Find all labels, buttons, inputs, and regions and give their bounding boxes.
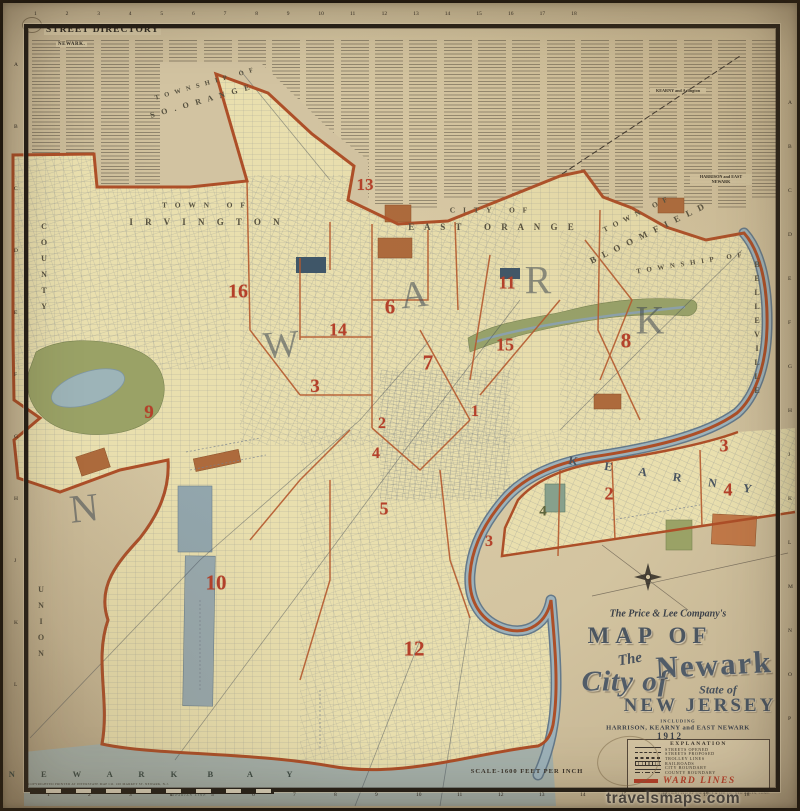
ward-number-12: 12	[404, 637, 425, 662]
ruler-top-5: 5	[160, 11, 163, 17]
ruler-right-G: G	[788, 364, 792, 370]
ward-number-16: 16	[228, 281, 248, 304]
ruler-top-6: 6	[192, 11, 195, 17]
legend-box: EXPLANATION STREETS OPENEDSTREETS PROPOS…	[627, 739, 770, 791]
ruler-left-D: D	[14, 248, 18, 254]
big-letter-R: R	[525, 257, 552, 304]
county-boundary	[562, 56, 740, 174]
ward-line-symbol	[634, 779, 658, 782]
map-label: UNION	[37, 585, 46, 665]
ward-number-3: 3	[485, 533, 493, 551]
survey-lines	[592, 545, 788, 610]
ruler-bottom-14: 14	[580, 792, 586, 798]
ward-number-2: 2	[378, 415, 386, 433]
ward-number-3: 3	[720, 436, 729, 457]
ward-number-5: 5	[380, 499, 389, 520]
ward-number-3: 3	[310, 376, 320, 398]
ruler-right-K: K	[788, 496, 792, 502]
ruler-top-11: 11	[350, 11, 355, 17]
ruler-top-13: 13	[413, 11, 419, 17]
ruler-right-E: E	[788, 276, 791, 282]
ward-number-15: 15	[496, 335, 514, 356]
ruler-left-K: K	[14, 620, 18, 626]
map-label: B A Y	[208, 769, 309, 779]
legend-item-label: COUNTY BOUNDARY	[665, 770, 716, 775]
ward-number-2: 2	[605, 484, 614, 505]
ward-number-9: 9	[144, 402, 154, 424]
ruler-left-A: A	[14, 62, 18, 68]
ruler-top-4: 4	[129, 11, 132, 17]
title-including: INCLUDING	[660, 719, 695, 724]
ruler-top-12: 12	[382, 11, 388, 17]
ruler-bottom-7: 7	[293, 792, 296, 798]
ruler-top-15: 15	[476, 11, 482, 17]
ruler-right-M: M	[788, 584, 793, 590]
ruler-bottom-11: 11	[457, 792, 462, 798]
ruler-left-B: B	[14, 124, 18, 130]
solid-symbol	[635, 747, 661, 751]
ruler-top-10: 10	[318, 11, 324, 17]
ruler-left-J: J	[14, 558, 16, 564]
ruler-right-O: O	[788, 672, 792, 678]
big-letter-K: K	[636, 297, 665, 344]
ruler-right-B: B	[788, 144, 792, 150]
map-label: I R V I N G T O N	[129, 217, 284, 227]
map-label: N E W A R K	[9, 769, 190, 779]
ruler-right-P: P	[788, 716, 791, 722]
scale-bar	[30, 788, 274, 794]
map-photo: STREET DIRECTORY NEWARK. KEARNY and Arli…	[0, 0, 800, 811]
ruler-right-F: F	[788, 320, 791, 326]
ruler-bottom-12: 12	[498, 792, 504, 798]
ward-number-4: 4	[539, 504, 547, 521]
title-newark: Newark	[655, 644, 774, 686]
title-map-of: MAP OF	[588, 623, 713, 649]
ruler-bottom-10: 10	[416, 792, 422, 798]
map-label: E A S T O R A N G E	[408, 222, 577, 232]
ruler-top-1: 1	[34, 11, 37, 17]
ruler-top-16: 16	[508, 11, 514, 17]
watermark: travelsmaps.com	[606, 790, 740, 808]
ruler-right-N: N	[788, 628, 792, 634]
publisher-imprint: COPYRIGHTED PRINTED AT INTERSTATE MAP CO…	[28, 782, 169, 786]
ward-number-14: 14	[329, 320, 347, 341]
ruler-right-A: A	[788, 100, 792, 106]
ward-number-4: 4	[724, 480, 733, 501]
ruler-left-L: L	[14, 682, 17, 688]
ruler-right-L: L	[788, 540, 791, 546]
title-new-jersey: NEW JERSEY	[624, 695, 777, 717]
title-company: The Price & Lee Company's	[610, 609, 727, 620]
ward-number-10: 10	[206, 571, 227, 596]
ruler-left-C: C	[14, 186, 18, 192]
big-letter-W: W	[262, 322, 301, 368]
ruler-top-9: 9	[287, 11, 290, 17]
ruler-bottom-13: 13	[539, 792, 545, 798]
legend-item: COUNTY BOUNDARY	[628, 770, 769, 775]
legend-ward-lines: WARD LINES	[628, 776, 769, 787]
cityline-symbol	[635, 765, 661, 770]
ward-number-8: 8	[621, 329, 632, 354]
ruler-bottom-9: 9	[375, 792, 378, 798]
ruler-bottom-8: 8	[334, 792, 337, 798]
ruler-left-H: H	[14, 496, 18, 502]
ward-number-1: 1	[471, 403, 479, 421]
big-letter-A: A	[398, 272, 430, 319]
countyline-symbol	[635, 772, 661, 773]
ruler-left-F: F	[14, 372, 17, 378]
ruler-top-7: 7	[224, 11, 227, 17]
ruler-top-8: 8	[255, 11, 258, 17]
ruler-right-D: D	[788, 232, 792, 238]
ruler-left-G: G	[14, 434, 18, 440]
ward-number-7: 7	[423, 351, 434, 376]
ruler-top-3: 3	[97, 11, 100, 17]
trolley-symbol	[635, 757, 661, 759]
ruler-bottom-18: 18	[744, 792, 750, 798]
ruler-top-14: 14	[445, 11, 451, 17]
ruler-top-2: 2	[66, 11, 69, 17]
dashed-symbol	[635, 752, 661, 756]
map-label: C I T Y O F	[450, 206, 530, 215]
ruler-right-J: J	[788, 452, 790, 458]
ward-number-6: 6	[385, 295, 396, 320]
ruler-top-17: 17	[540, 11, 546, 17]
map-label: COUNTY	[40, 222, 49, 318]
map-canvas	[0, 0, 800, 811]
ruler-top-18: 18	[571, 11, 577, 17]
map-label: BELLEVILLE	[753, 260, 762, 400]
ward-number-4: 4	[372, 445, 380, 463]
ruler-right-H: H	[788, 408, 792, 414]
map-label: T O W N O F	[162, 201, 248, 210]
ruler-right-C: C	[788, 188, 792, 194]
ruler-left-E: E	[14, 310, 17, 316]
scale-note: SCALE-1600 FEET PER INCH	[471, 768, 584, 775]
big-letter-N: N	[67, 483, 101, 533]
ward-number-11: 11	[498, 273, 515, 294]
ward-number-13: 13	[357, 175, 374, 195]
